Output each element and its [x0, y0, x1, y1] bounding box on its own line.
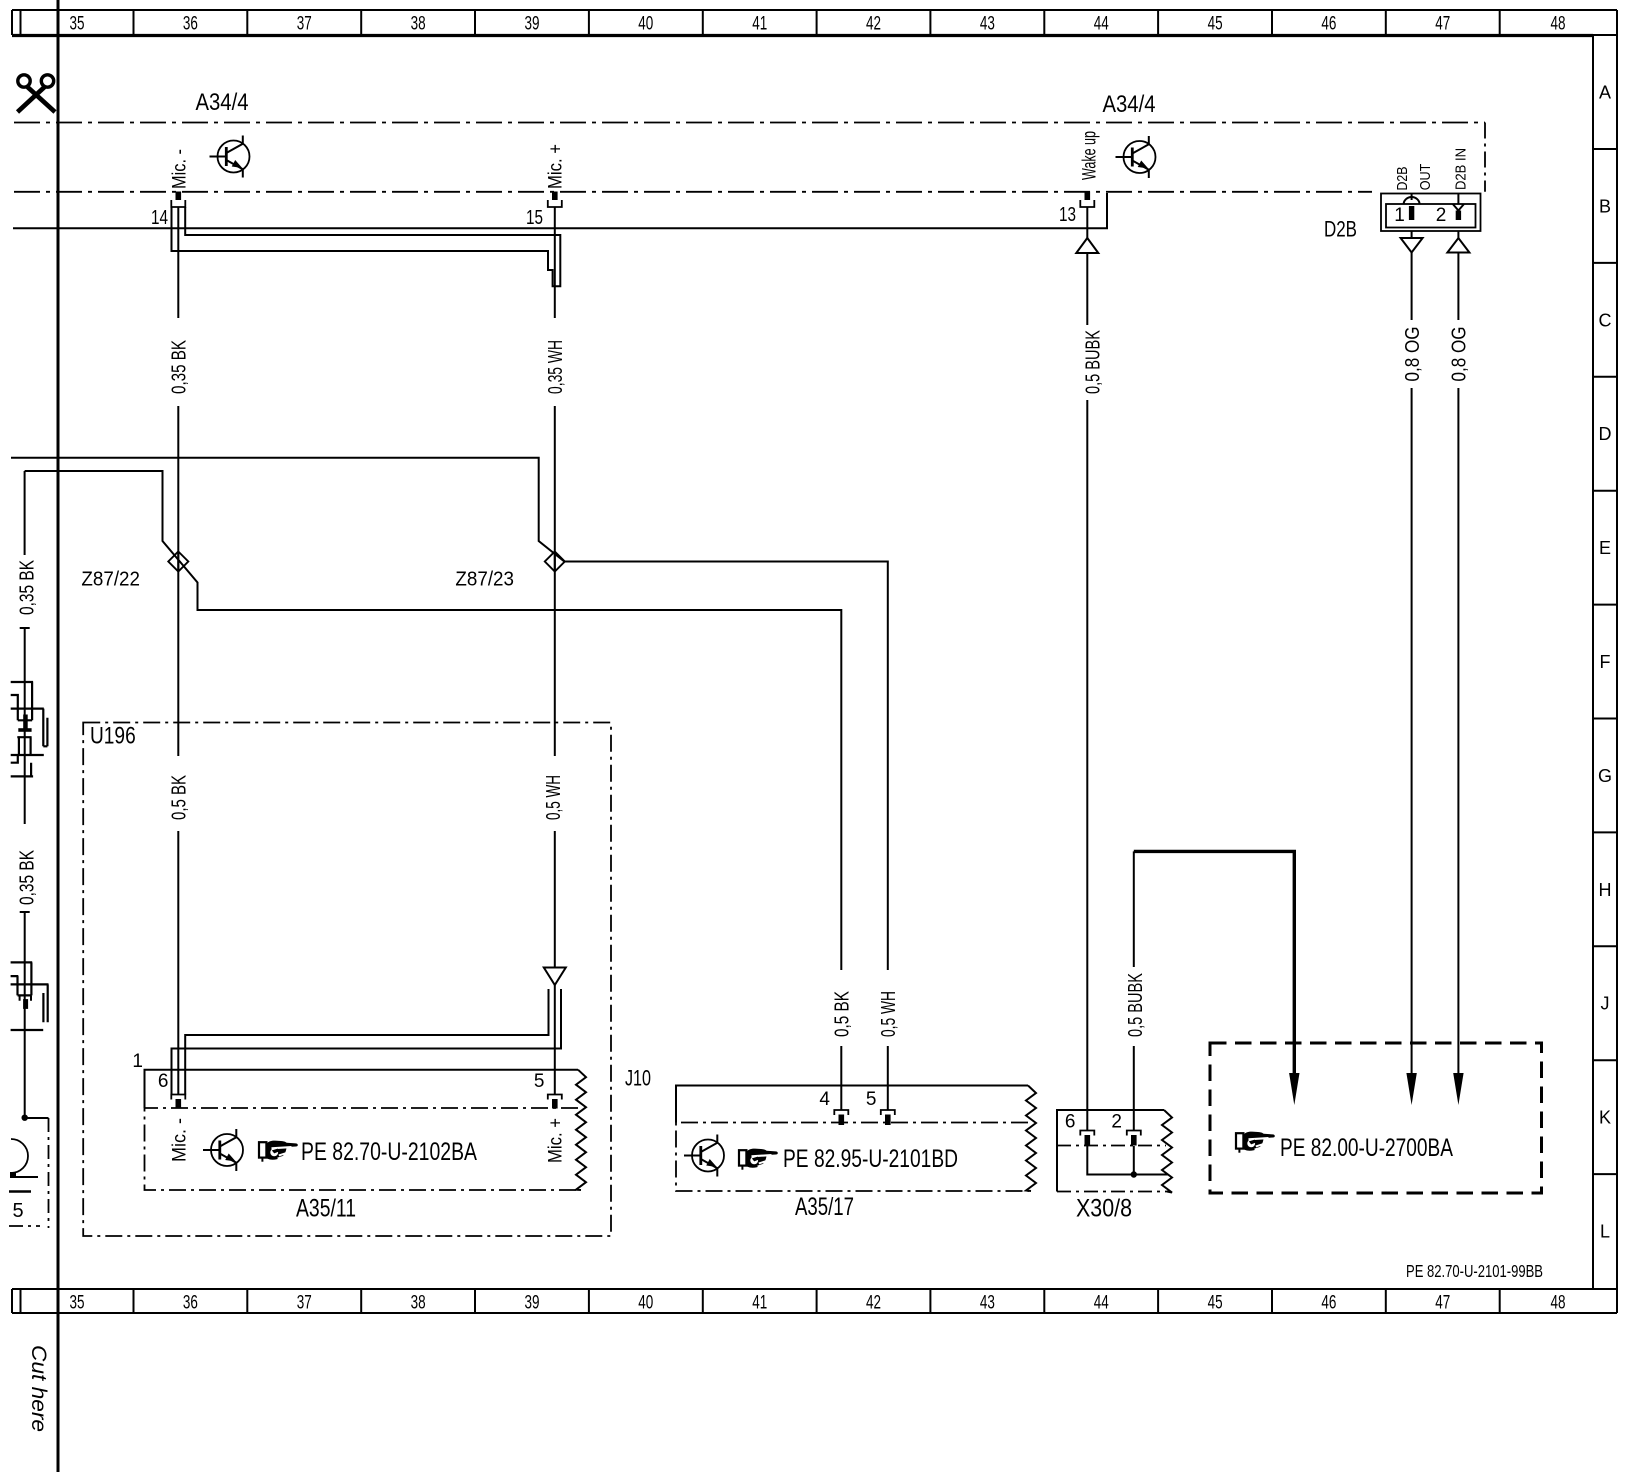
svg-text:2: 2 — [1111, 1112, 1122, 1133]
svg-text:G: G — [1598, 766, 1612, 786]
svg-text:45: 45 — [1208, 1293, 1223, 1314]
svg-text:PE 82.70-U-2101-99BB: PE 82.70-U-2101-99BB — [1406, 1261, 1543, 1281]
svg-text:F: F — [1600, 652, 1611, 672]
svg-text:41: 41 — [752, 14, 767, 35]
svg-text:PE 82.95-U-2101BD: PE 82.95-U-2101BD — [783, 1145, 958, 1173]
svg-text:42: 42 — [866, 1293, 881, 1314]
svg-text:46: 46 — [1321, 14, 1336, 35]
svg-text:A34/4: A34/4 — [1103, 91, 1156, 118]
svg-text:B: B — [1599, 196, 1611, 216]
svg-text:36: 36 — [183, 14, 198, 35]
svg-text:D: D — [1599, 424, 1612, 444]
svg-text:0,5 WH: 0,5 WH — [878, 991, 900, 1037]
svg-text:0,5 BUBK: 0,5 BUBK — [1125, 973, 1147, 1037]
svg-text:X30/8: X30/8 — [1076, 1195, 1132, 1223]
svg-text:0,35 BK: 0,35 BK — [17, 849, 39, 905]
svg-text:47: 47 — [1435, 1293, 1450, 1314]
svg-text:J: J — [1601, 994, 1610, 1014]
svg-text:Mic. +: Mic. + — [546, 1118, 567, 1163]
svg-text:D2B: D2B — [1394, 167, 1411, 191]
svg-text:A34/4: A34/4 — [196, 89, 249, 116]
svg-text:Z87/22: Z87/22 — [81, 569, 140, 591]
svg-text:L: L — [1600, 1222, 1610, 1242]
svg-text:38: 38 — [411, 1293, 426, 1314]
svg-text:C: C — [1599, 310, 1612, 330]
svg-text:A35/17: A35/17 — [795, 1193, 854, 1221]
svg-text:0,8 OG: 0,8 OG — [1449, 327, 1471, 382]
svg-text:39: 39 — [525, 1293, 540, 1314]
svg-text:D2B IN: D2B IN — [1452, 148, 1469, 190]
svg-text:OUT: OUT — [1417, 164, 1434, 191]
svg-text:Mic. -: Mic. - — [169, 1118, 190, 1162]
svg-text:Z87/23: Z87/23 — [455, 569, 514, 591]
svg-text:J10: J10 — [625, 1066, 651, 1091]
svg-text:U196: U196 — [90, 723, 136, 750]
svg-text:37: 37 — [297, 1293, 312, 1314]
svg-text:45: 45 — [1208, 14, 1223, 35]
svg-text:40: 40 — [638, 1293, 653, 1314]
svg-text:44: 44 — [1094, 1293, 1109, 1314]
svg-text:44: 44 — [1094, 14, 1109, 35]
svg-text:K: K — [1599, 1108, 1611, 1128]
svg-text:0,35 BK: 0,35 BK — [17, 559, 39, 615]
svg-text:37: 37 — [297, 14, 312, 35]
svg-text:A: A — [1599, 83, 1611, 103]
svg-text:D2B: D2B — [1324, 217, 1357, 242]
svg-text:13: 13 — [1059, 204, 1076, 226]
svg-text:A35/11: A35/11 — [296, 1195, 356, 1223]
svg-text:0,35 BK: 0,35 BK — [169, 340, 191, 394]
svg-text:47: 47 — [1435, 14, 1450, 35]
svg-text:Mic. +: Mic. + — [546, 144, 567, 189]
svg-text:5: 5 — [866, 1089, 877, 1110]
svg-text:43: 43 — [980, 14, 995, 35]
svg-text:Wake up: Wake up — [1080, 131, 1101, 180]
svg-text:6: 6 — [158, 1071, 169, 1092]
svg-text:2: 2 — [1436, 205, 1447, 226]
svg-text:43: 43 — [980, 1293, 995, 1314]
svg-text:14: 14 — [151, 207, 168, 229]
svg-text:0,5 BUBK: 0,5 BUBK — [1083, 330, 1105, 394]
svg-text:4: 4 — [819, 1089, 830, 1110]
svg-text:48: 48 — [1551, 1293, 1566, 1314]
svg-text:PE 82.70-U-2102BA: PE 82.70-U-2102BA — [301, 1138, 477, 1166]
svg-text:36: 36 — [183, 1293, 198, 1314]
svg-text:1: 1 — [1394, 205, 1405, 226]
svg-text:0,5 BK: 0,5 BK — [832, 991, 854, 1037]
svg-text:15: 15 — [526, 207, 543, 229]
svg-text:42: 42 — [866, 14, 881, 35]
svg-text:Mic. -: Mic. - — [169, 149, 190, 189]
svg-text:Cut here: Cut here — [27, 1345, 50, 1432]
svg-text:39: 39 — [525, 14, 540, 35]
svg-text:6: 6 — [1065, 1112, 1076, 1133]
svg-text:46: 46 — [1321, 1293, 1336, 1314]
svg-text:5: 5 — [534, 1071, 545, 1092]
svg-text:5: 5 — [12, 1200, 23, 1222]
svg-text:35: 35 — [70, 1293, 85, 1314]
svg-text:0,5 WH: 0,5 WH — [543, 775, 565, 820]
svg-text:0,5 BK: 0,5 BK — [169, 775, 191, 820]
svg-text:38: 38 — [411, 14, 426, 35]
svg-text:1: 1 — [132, 1051, 143, 1072]
svg-text:40: 40 — [638, 14, 653, 35]
svg-text:PE 82.00-U-2700BA: PE 82.00-U-2700BA — [1280, 1134, 1453, 1162]
svg-text:H: H — [1599, 880, 1612, 900]
svg-text:E: E — [1599, 538, 1611, 558]
svg-text:0,35 WH: 0,35 WH — [545, 340, 567, 394]
svg-text:48: 48 — [1551, 14, 1566, 35]
svg-text:0,8 OG: 0,8 OG — [1402, 327, 1424, 382]
svg-text:41: 41 — [752, 1293, 767, 1314]
svg-text:35: 35 — [70, 14, 85, 35]
